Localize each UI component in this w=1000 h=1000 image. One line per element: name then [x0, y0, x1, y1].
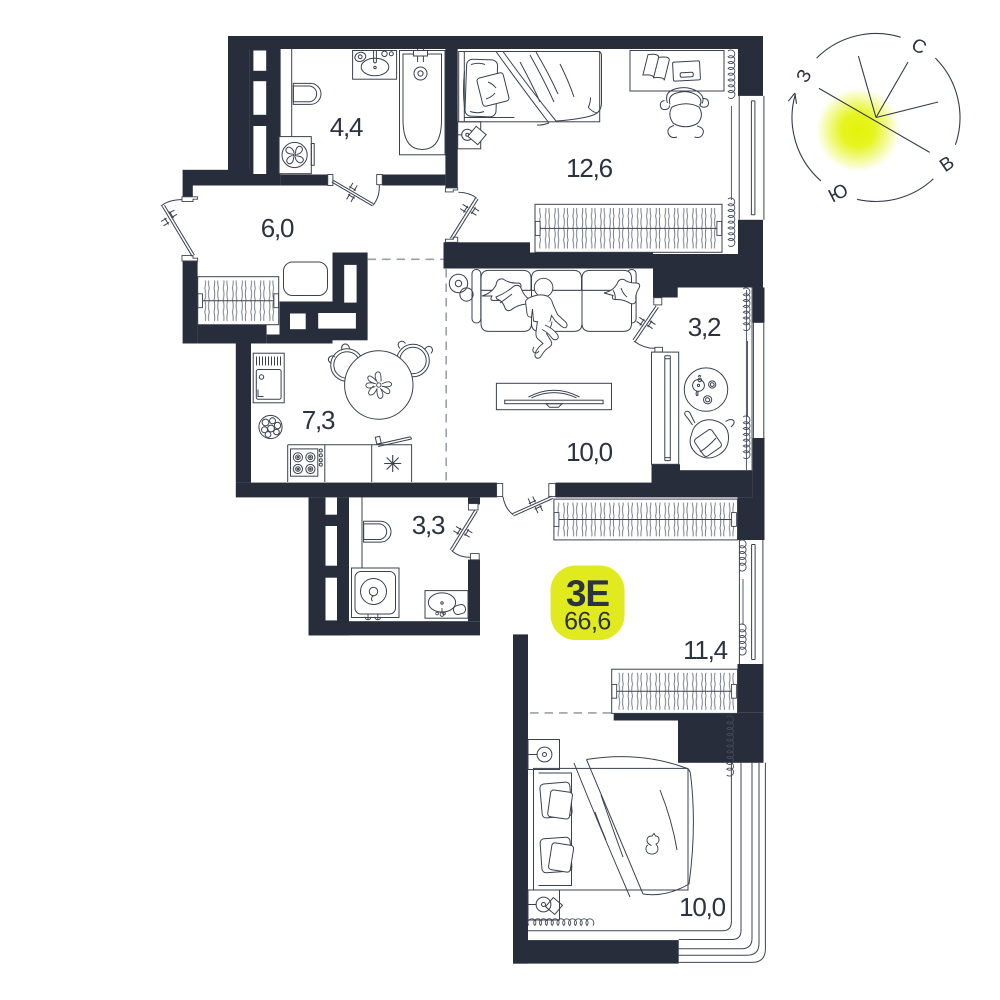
svg-text:3,2: 3,2 [688, 312, 721, 342]
svg-text:10,0: 10,0 [679, 892, 726, 922]
svg-text:В: В [936, 152, 958, 176]
svg-text:66,6: 66,6 [564, 608, 611, 636]
svg-text:10,0: 10,0 [566, 437, 613, 467]
svg-text:11,4: 11,4 [683, 635, 728, 665]
svg-text:12,6: 12,6 [566, 153, 613, 183]
svg-text:З: З [793, 66, 817, 86]
svg-text:Ю: Ю [825, 180, 852, 207]
svg-text:С: С [908, 34, 930, 59]
svg-text:6,0: 6,0 [261, 213, 294, 243]
svg-text:4,4: 4,4 [330, 112, 363, 142]
svg-text:3,3: 3,3 [412, 510, 445, 540]
svg-text:7,3: 7,3 [302, 405, 335, 435]
